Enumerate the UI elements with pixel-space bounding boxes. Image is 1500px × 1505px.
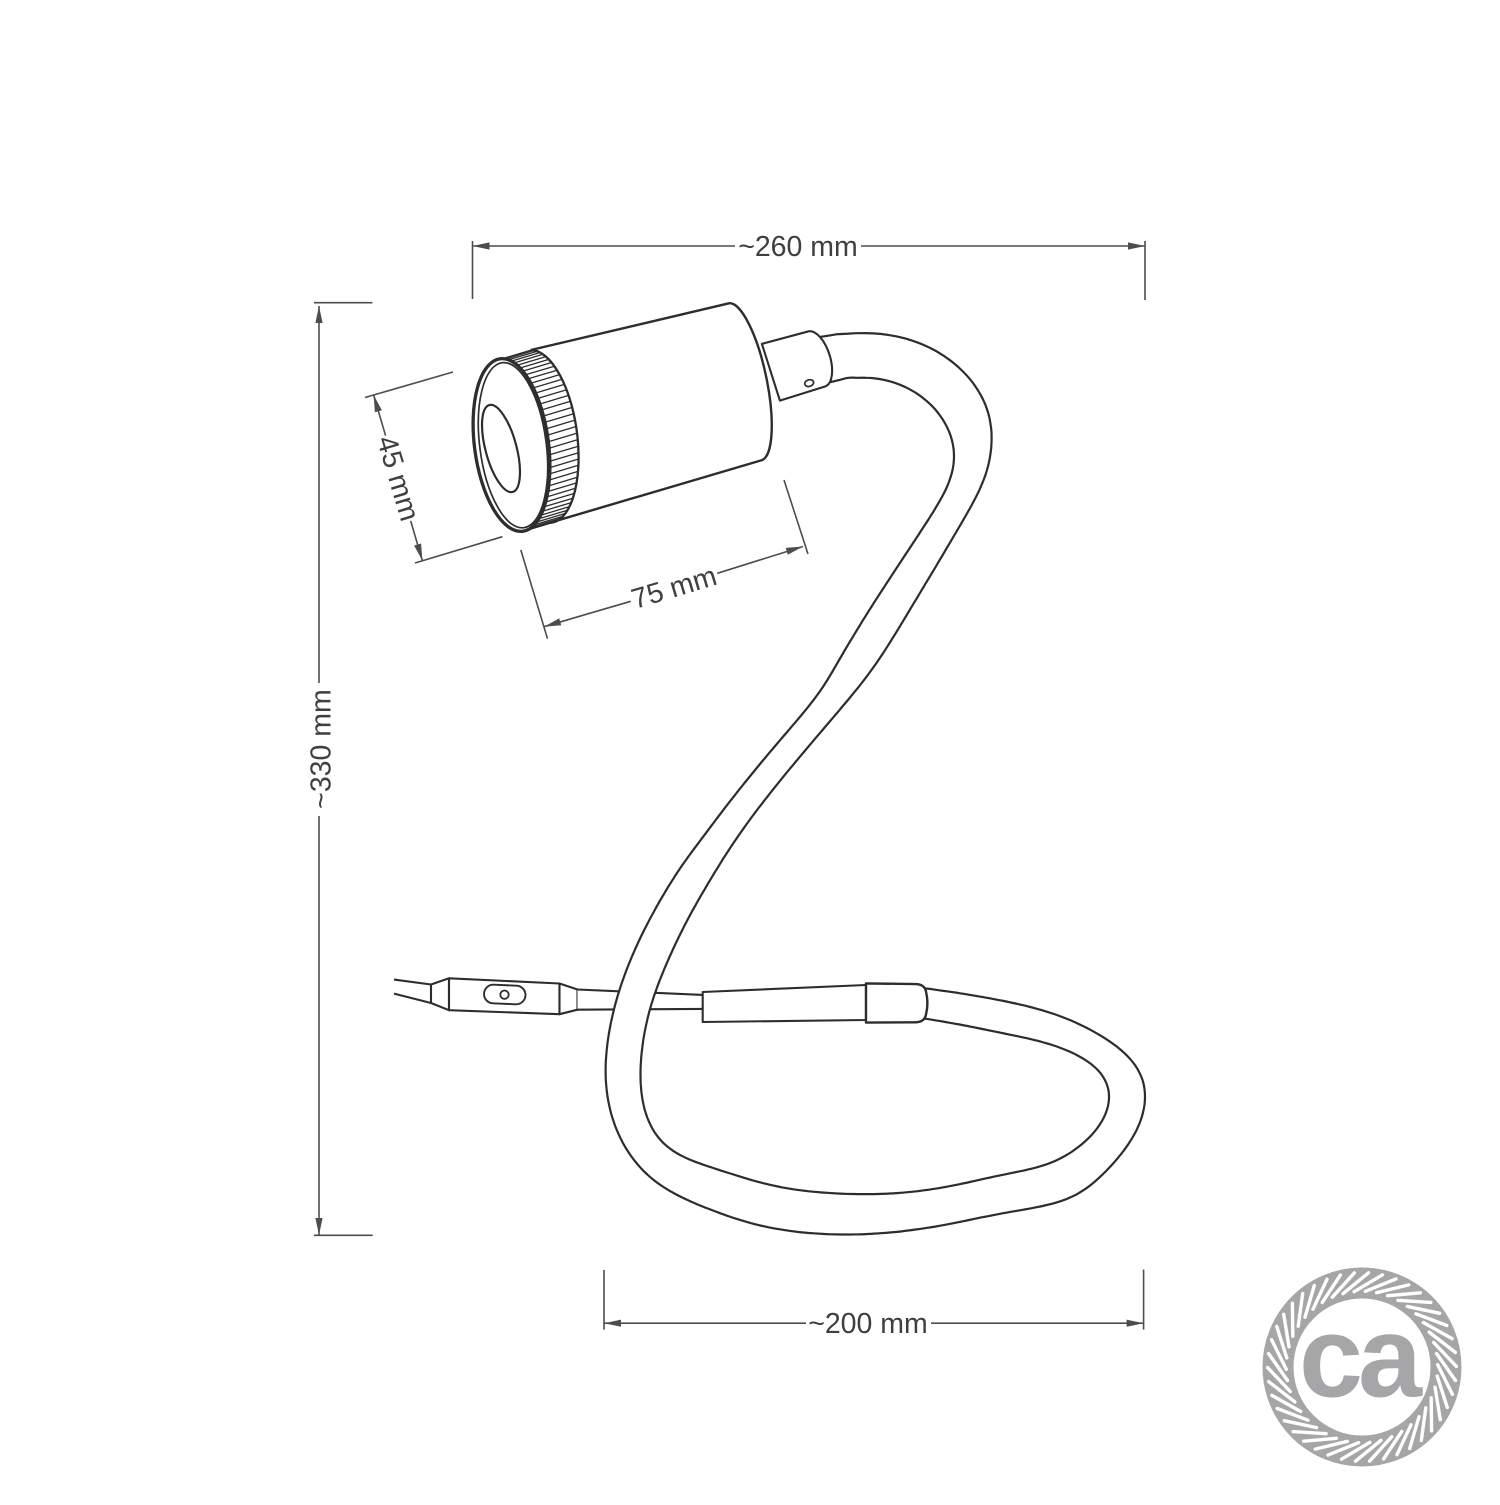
svg-text:ca: ca bbox=[1299, 1294, 1423, 1422]
svg-text:~200 mm: ~200 mm bbox=[808, 1308, 928, 1340]
svg-text:~330 mm: ~330 mm bbox=[306, 689, 338, 809]
svg-text:~260 mm: ~260 mm bbox=[738, 231, 858, 263]
